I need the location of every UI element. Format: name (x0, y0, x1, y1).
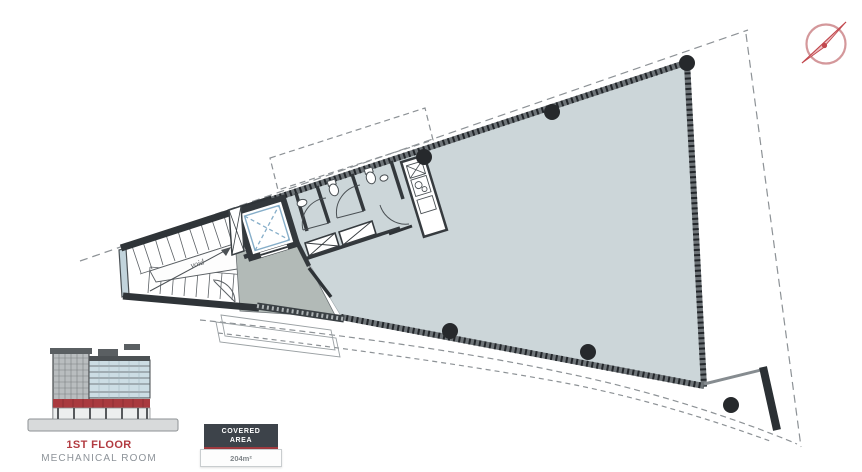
entrance-steps (216, 315, 340, 357)
highlighted-first-floor (53, 399, 150, 408)
covered-area-label-line1: COVERED (204, 427, 278, 436)
column-dot (442, 323, 458, 339)
floor-legend: 1ST FLOOR MECHANICAL ROOM (26, 439, 172, 464)
duct-shaft (229, 206, 244, 255)
elevator (237, 198, 297, 258)
main-hall-floor (254, 64, 702, 385)
wall-bottom-left-solid (123, 296, 259, 308)
covered-area-legend: COVERED AREA 204m² (200, 424, 282, 467)
floor-plan-drawing: void (0, 0, 862, 472)
page-canvas: void (0, 0, 862, 472)
left-glazing (119, 248, 129, 297)
covered-area-header: COVERED AREA (204, 424, 278, 449)
column-dot (679, 55, 695, 71)
building-elevation (28, 344, 178, 431)
column-dot (544, 104, 560, 120)
floor-title: 1ST FLOOR (26, 439, 172, 452)
column-dot (416, 149, 432, 165)
floor-subtitle: MECHANICAL ROOM (26, 453, 172, 465)
covered-area-value: 204m² (200, 449, 282, 467)
property-line-right (746, 34, 801, 447)
wall-stub-bottom-right (763, 367, 777, 430)
wall-extension-line (704, 369, 765, 384)
covered-area-label-line2: AREA (204, 436, 278, 445)
column-dot (723, 397, 739, 413)
north-arrow-icon (802, 22, 846, 64)
column-dot (580, 344, 596, 360)
